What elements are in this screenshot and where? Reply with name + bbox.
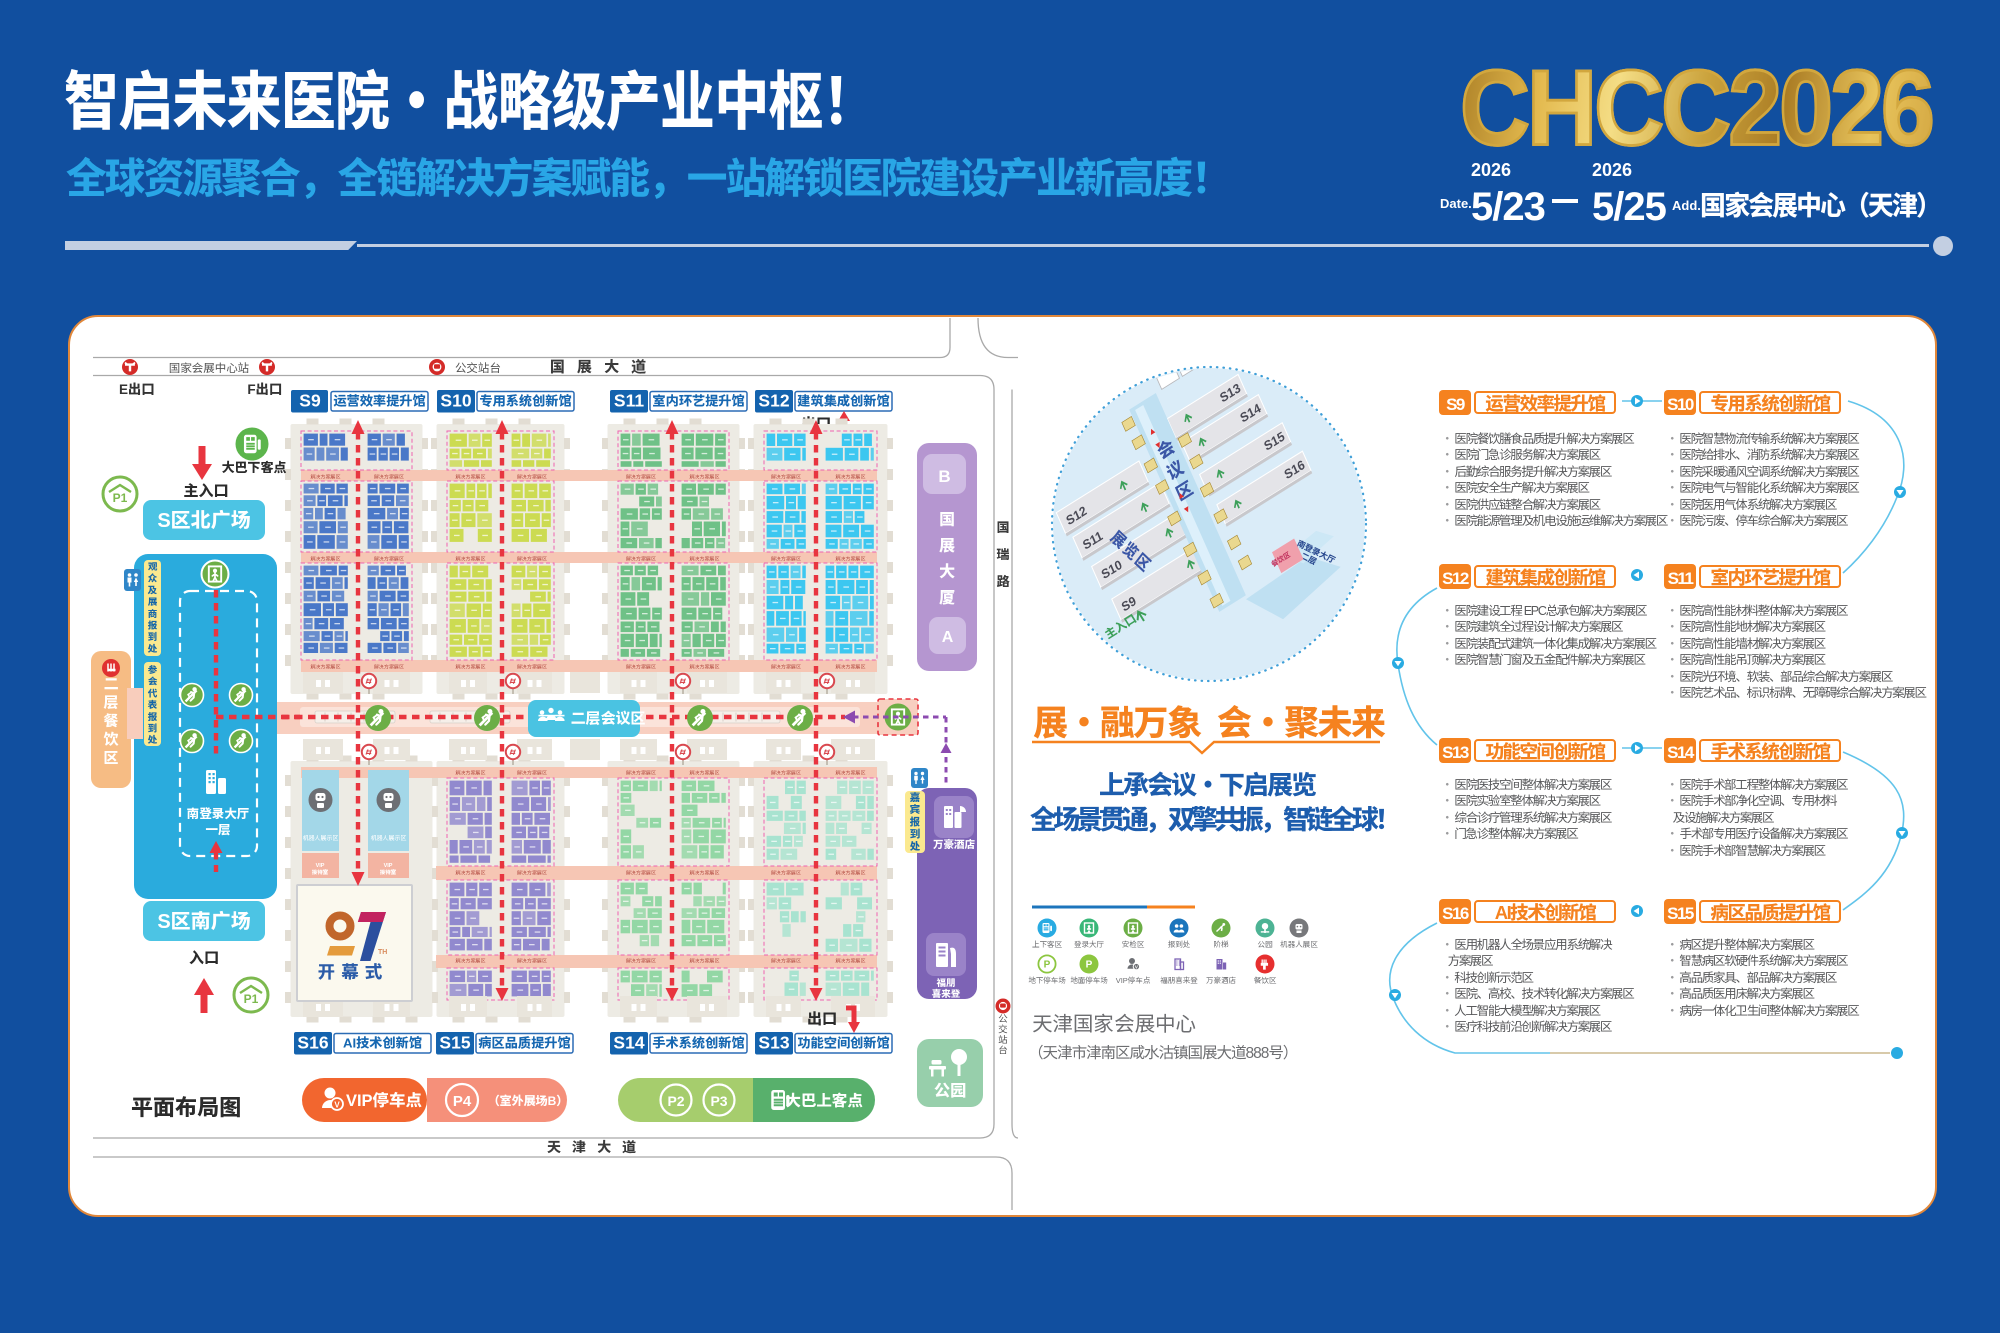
svg-text:解决方案展区: 解决方案展区 (373, 474, 404, 481)
svg-text:解决方案展区: 解决方案展区 (688, 556, 719, 563)
svg-text:大: 大 (939, 558, 955, 582)
svg-text:S16: S16 (297, 1030, 328, 1055)
svg-text:机器人展区: 机器人展区 (1279, 939, 1318, 950)
svg-text:P4: P4 (453, 1090, 472, 1111)
svg-text:解决方案展区: 解决方案展区 (454, 770, 485, 777)
svg-text:室内环艺提升馆: 室内环艺提升馆 (652, 391, 744, 410)
svg-text:TH: TH (378, 947, 387, 957)
svg-text:解决方案展区: 解决方案展区 (625, 474, 656, 481)
svg-text:大巴上客点: 大巴上客点 (785, 1089, 863, 1111)
svg-text:区: 区 (103, 747, 118, 768)
svg-text:安检区: 安检区 (1122, 939, 1145, 950)
svg-text:解决方案展区: 解决方案展区 (770, 664, 801, 671)
svg-text:P1: P1 (244, 990, 259, 1007)
svg-text:S9: S9 (299, 388, 321, 413)
svg-text:P: P (1044, 956, 1051, 971)
svg-text:大巴下客点: 大巴下客点 (221, 457, 286, 476)
svg-text:处: 处 (910, 839, 921, 854)
svg-text:VIP停车点: VIP停车点 (346, 1087, 423, 1111)
svg-text:地面停车场: 地面停车场 (1070, 975, 1108, 986)
svg-text:解决方案展区: 解决方案展区 (516, 958, 547, 965)
svg-text:处: 处 (147, 641, 158, 655)
svg-text:AI技术创新馆: AI技术创新馆 (343, 1033, 422, 1052)
svg-text:平面布局图: 平面布局图 (131, 1090, 241, 1122)
svg-text:登录大厅: 登录大厅 (1074, 939, 1104, 950)
svg-text:国: 国 (939, 506, 955, 530)
svg-text:解决方案展区: 解决方案展区 (309, 474, 340, 481)
svg-text:主入口: 主入口 (183, 480, 228, 501)
svg-text:公园: 公园 (1258, 939, 1273, 950)
svg-text:V: V (334, 1100, 340, 1111)
svg-text:厦: 厦 (939, 584, 955, 608)
svg-text:解决方案展区: 解决方案展区 (373, 556, 404, 563)
svg-text:P: P (1086, 956, 1093, 971)
svg-text:解决方案展区: 解决方案展区 (516, 870, 547, 877)
svg-text:解决方案展区: 解决方案展区 (516, 556, 547, 563)
svg-text:P1: P1 (113, 489, 128, 506)
svg-text:（室外展场B）: （室外展场B） (488, 1092, 569, 1109)
svg-text:解决方案展区: 解决方案展区 (625, 770, 656, 777)
svg-text:解决方案展区: 解决方案展区 (625, 870, 656, 877)
svg-text:A: A (942, 623, 954, 647)
svg-text:解决方案展区: 解决方案展区 (454, 556, 485, 563)
svg-text:接待室: 接待室 (380, 868, 397, 876)
svg-text:解决方案展区: 解决方案展区 (516, 664, 547, 671)
svg-text:国家会展中心站: 国家会展中心站 (169, 360, 250, 376)
svg-text:S10: S10 (440, 388, 471, 413)
svg-text:福朋喜来登: 福朋喜来登 (1160, 975, 1198, 986)
svg-text:台: 台 (998, 1043, 1008, 1057)
svg-text:E出口: E出口 (119, 378, 155, 398)
svg-text:阶梯: 阶梯 (1214, 939, 1230, 950)
svg-text:解决方案展区: 解决方案展区 (770, 958, 801, 965)
svg-text:病区品质提升馆: 病区品质提升馆 (478, 1033, 570, 1052)
svg-text:S11: S11 (614, 388, 644, 413)
svg-text:机器人展示区: 机器人展示区 (302, 833, 338, 842)
svg-text:解决方案展区: 解决方案展区 (373, 664, 404, 671)
svg-text:上下客区: 上下客区 (1032, 939, 1062, 950)
svg-text:解决方案展区: 解决方案展区 (516, 474, 547, 481)
svg-text:解决方案展区: 解决方案展区 (309, 664, 340, 671)
svg-text:地下停车场: 地下停车场 (1028, 975, 1066, 986)
svg-text:国: 国 (996, 517, 1009, 536)
svg-text:处: 处 (147, 732, 158, 746)
svg-text:S区北广场: S区北广场 (157, 504, 250, 533)
svg-text:解决方案展区: 解决方案展区 (454, 958, 485, 965)
svg-text:解决方案展区: 解决方案展区 (688, 770, 719, 777)
svg-text:运营效率提升馆: 运营效率提升馆 (333, 391, 425, 410)
svg-text:一层: 一层 (205, 819, 230, 838)
svg-text:解决方案展区: 解决方案展区 (770, 870, 801, 877)
svg-text:瑞: 瑞 (996, 544, 1009, 563)
svg-text:解决方案展区: 解决方案展区 (454, 474, 485, 481)
svg-text:V: V (1135, 965, 1138, 971)
svg-text:解决方案展区: 解决方案展区 (688, 870, 719, 877)
svg-text:解决方案展区: 解决方案展区 (688, 474, 719, 481)
svg-text:机器人展示区: 机器人展示区 (370, 833, 406, 842)
svg-text:公交站台: 公交站台 (455, 360, 501, 376)
svg-text:B: B (938, 462, 950, 487)
svg-text:国展大道: 国展大道 (550, 356, 658, 377)
svg-text:解决方案展区: 解决方案展区 (834, 474, 865, 481)
svg-text:解决方案展区: 解决方案展区 (834, 556, 865, 563)
svg-text:解决方案展区: 解决方案展区 (625, 556, 656, 563)
svg-text:万豪酒店: 万豪酒店 (933, 837, 975, 852)
svg-text:解决方案展区: 解决方案展区 (454, 664, 485, 671)
svg-text:入口: 入口 (189, 947, 219, 968)
svg-text:解决方案展区: 解决方案展区 (770, 474, 801, 481)
svg-text:餐饮区: 餐饮区 (1254, 975, 1277, 986)
svg-text:喜来登: 喜来登 (932, 986, 961, 1000)
svg-text:F出口: F出口 (247, 378, 282, 398)
svg-text:报到处: 报到处 (1168, 939, 1191, 950)
svg-text:出口: 出口 (807, 1008, 837, 1029)
svg-text:功能空间创新馆: 功能空间创新馆 (797, 1033, 889, 1052)
svg-text:S14: S14 (613, 1030, 644, 1055)
svg-text:解决方案展区: 解决方案展区 (454, 870, 485, 877)
svg-text:手术系统创新馆: 手术系统创新馆 (652, 1033, 744, 1052)
svg-text:解决方案展区: 解决方案展区 (770, 770, 801, 777)
svg-text:解决方案展区: 解决方案展区 (834, 664, 865, 671)
svg-text:天津大道: 天津大道 (547, 1137, 647, 1157)
svg-text:建筑集成创新馆: 建筑集成创新馆 (797, 391, 889, 410)
svg-text:解决方案展区: 解决方案展区 (688, 664, 719, 671)
svg-text:P2: P2 (667, 1091, 684, 1111)
svg-text:解决方案展区: 解决方案展区 (834, 770, 865, 777)
svg-text:万豪酒店: 万豪酒店 (1206, 975, 1236, 986)
svg-text:展: 展 (939, 532, 955, 556)
svg-text:二层会议区: 二层会议区 (570, 708, 645, 729)
svg-text:解决方案展区: 解决方案展区 (770, 556, 801, 563)
svg-text:解决方案展区: 解决方案展区 (834, 870, 865, 877)
svg-text:解决方案展区: 解决方案展区 (516, 770, 547, 777)
svg-text:解决方案展区: 解决方案展区 (625, 664, 656, 671)
svg-text:公园: 公园 (934, 1077, 966, 1101)
svg-text:接待室: 接待室 (312, 868, 329, 876)
svg-text:S12: S12 (758, 388, 789, 413)
svg-text:解决方案展区: 解决方案展区 (625, 958, 656, 965)
svg-text:VIP停车点: VIP停车点 (1116, 975, 1151, 986)
svg-text:解决方案展区: 解决方案展区 (688, 958, 719, 965)
svg-text:专用系统创新馆: 专用系统创新馆 (479, 391, 571, 410)
svg-text:开幕式: 开幕式 (318, 959, 389, 984)
svg-text:P3: P3 (710, 1091, 727, 1111)
svg-text:解决方案展区: 解决方案展区 (309, 556, 340, 563)
svg-text:解决方案展区: 解决方案展区 (834, 958, 865, 965)
svg-text:路: 路 (996, 571, 1009, 590)
svg-text:S13: S13 (758, 1030, 789, 1055)
svg-text:S15: S15 (439, 1030, 470, 1055)
svg-text:S区南广场: S区南广场 (157, 905, 250, 934)
